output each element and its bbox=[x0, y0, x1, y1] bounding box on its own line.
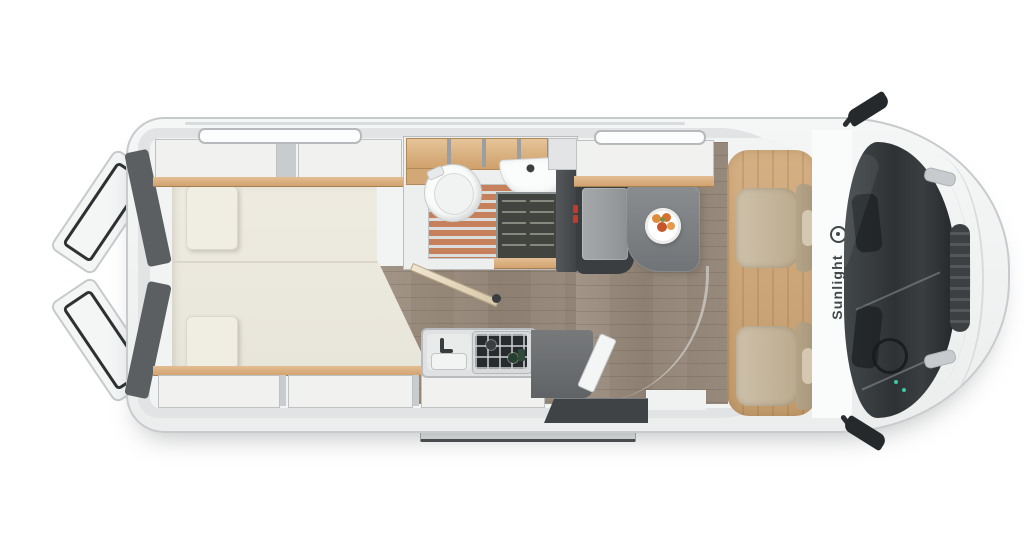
sliding-door-step bbox=[544, 398, 648, 423]
skylight-rear bbox=[198, 128, 362, 144]
toilet bbox=[424, 164, 482, 222]
locker-divider bbox=[413, 375, 419, 406]
seat-cushion bbox=[736, 326, 800, 406]
utensil-bottle bbox=[518, 349, 525, 361]
hanger-rail-left bbox=[502, 200, 526, 252]
bench-cushion bbox=[582, 188, 628, 260]
fruit bbox=[667, 222, 675, 230]
front-grille bbox=[950, 224, 970, 332]
seatbelt-buckle bbox=[573, 205, 578, 213]
shelf-divider bbox=[447, 139, 451, 167]
seat-cushion bbox=[736, 188, 800, 268]
overhead-locker-top-1 bbox=[155, 139, 277, 180]
kitchen-sink-bowl bbox=[431, 353, 467, 370]
cabinet-end-cap bbox=[548, 138, 578, 170]
overhead-locker-dinette bbox=[576, 140, 714, 179]
cab-seat-passenger bbox=[736, 184, 818, 272]
cab-seat-driver bbox=[736, 322, 818, 410]
door-rail-knob bbox=[492, 294, 501, 303]
camper-floorplan-image: Sunlight bbox=[0, 0, 1024, 559]
faucet-icon bbox=[526, 164, 534, 172]
locker-divider bbox=[277, 139, 296, 178]
fruit bbox=[657, 222, 667, 232]
wall-stub-entry-cab bbox=[646, 390, 706, 410]
overhead-locker-bottom-2 bbox=[288, 375, 413, 408]
locker-divider bbox=[280, 375, 286, 406]
overhead-locker-bottom-1 bbox=[158, 375, 280, 408]
steering-wheel-icon bbox=[872, 338, 908, 374]
shelf-trim-dinette bbox=[574, 176, 714, 187]
bed-back-cushion-bottom bbox=[186, 316, 238, 370]
seatbelt-buckle bbox=[573, 215, 578, 223]
burner-cap bbox=[486, 340, 496, 350]
mattress-seam bbox=[172, 261, 377, 263]
hanger-rail-right bbox=[530, 200, 554, 252]
wardrobe-shelf-trim bbox=[494, 258, 560, 269]
overhead-locker-bottom-3 bbox=[421, 375, 545, 408]
toilet-lid bbox=[434, 173, 474, 215]
skylight-front bbox=[594, 130, 706, 145]
roof-rail bbox=[185, 122, 685, 125]
dashboard-indicator-light bbox=[902, 388, 906, 392]
dashboard-indicator-light bbox=[894, 380, 898, 384]
plate-of-fruit bbox=[645, 208, 681, 244]
hanging-wardrobe bbox=[496, 192, 562, 262]
overhead-locker-top-2 bbox=[298, 139, 402, 180]
shelf-divider bbox=[482, 139, 486, 167]
bed-back-cushion-top bbox=[186, 186, 238, 250]
burner-cap bbox=[508, 353, 518, 363]
shelf-trim-top bbox=[153, 177, 403, 187]
fruit-leaf bbox=[660, 217, 665, 222]
